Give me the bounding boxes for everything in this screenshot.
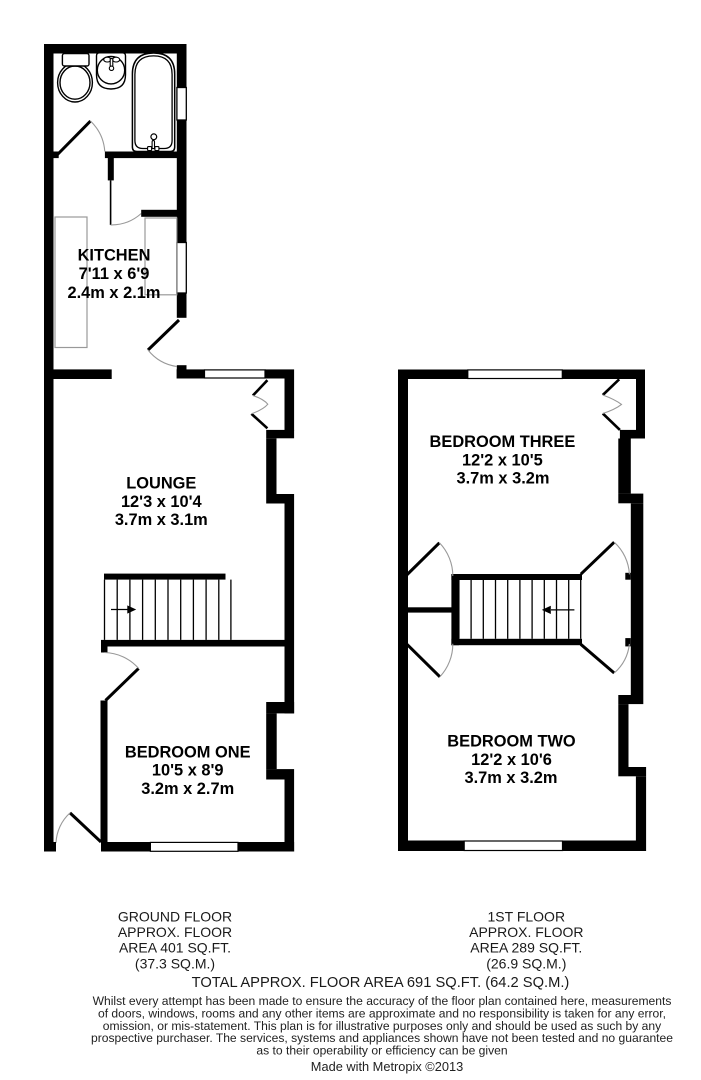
svg-text:TOTAL APPROX. FLOOR AREA 691 S: TOTAL APPROX. FLOOR AREA 691 SQ.FT. (64.…: [192, 975, 570, 991]
svg-text:10'5 x 8'9: 10'5 x 8'9: [152, 762, 224, 780]
svg-text:KITCHEN: KITCHEN: [78, 246, 151, 264]
svg-text:APPROX. FLOOR: APPROX. FLOOR: [118, 924, 232, 940]
svg-text:2.4m x 2.1m: 2.4m x 2.1m: [68, 284, 161, 302]
svg-text:12'3 x 10'4: 12'3 x 10'4: [121, 493, 203, 511]
svg-text:12'2 x 10'6: 12'2 x 10'6: [471, 751, 552, 769]
svg-text:AREA 401 SQ.FT.: AREA 401 SQ.FT.: [119, 940, 231, 956]
svg-text:(26.9 SQ.M.): (26.9 SQ.M.): [486, 955, 566, 971]
svg-text:3.2m x 2.7m: 3.2m x 2.7m: [141, 780, 234, 798]
svg-text:BEDROOM ONE: BEDROOM ONE: [125, 743, 251, 761]
svg-text:3.7m x 3.2m: 3.7m x 3.2m: [457, 470, 550, 488]
svg-text:GROUND FLOOR: GROUND FLOOR: [118, 909, 232, 925]
svg-text:AREA 289 SQ.FT.: AREA 289 SQ.FT.: [470, 940, 582, 956]
svg-text:1ST FLOOR: 1ST FLOOR: [488, 909, 566, 925]
svg-text:Made with Metropix ©2013: Made with Metropix ©2013: [311, 1059, 463, 1074]
svg-text:3.7m x 3.2m: 3.7m x 3.2m: [465, 769, 558, 787]
svg-text:APPROX. FLOOR: APPROX. FLOOR: [469, 924, 583, 940]
svg-text:12'2 x 10'5: 12'2 x 10'5: [462, 451, 543, 469]
svg-text:BEDROOM TWO: BEDROOM TWO: [447, 733, 576, 751]
svg-text:LOUNGE: LOUNGE: [126, 475, 196, 493]
svg-text:BEDROOM THREE: BEDROOM THREE: [430, 433, 576, 451]
svg-text:(37.3 SQ.M.): (37.3 SQ.M.): [135, 955, 215, 971]
svg-text:7'11 x 6'9: 7'11 x 6'9: [79, 265, 150, 283]
svg-text:as to their operability or eff: as to their operability or efficiency ca…: [256, 1044, 507, 1058]
svg-text:3.7m x 3.1m: 3.7m x 3.1m: [115, 511, 208, 529]
